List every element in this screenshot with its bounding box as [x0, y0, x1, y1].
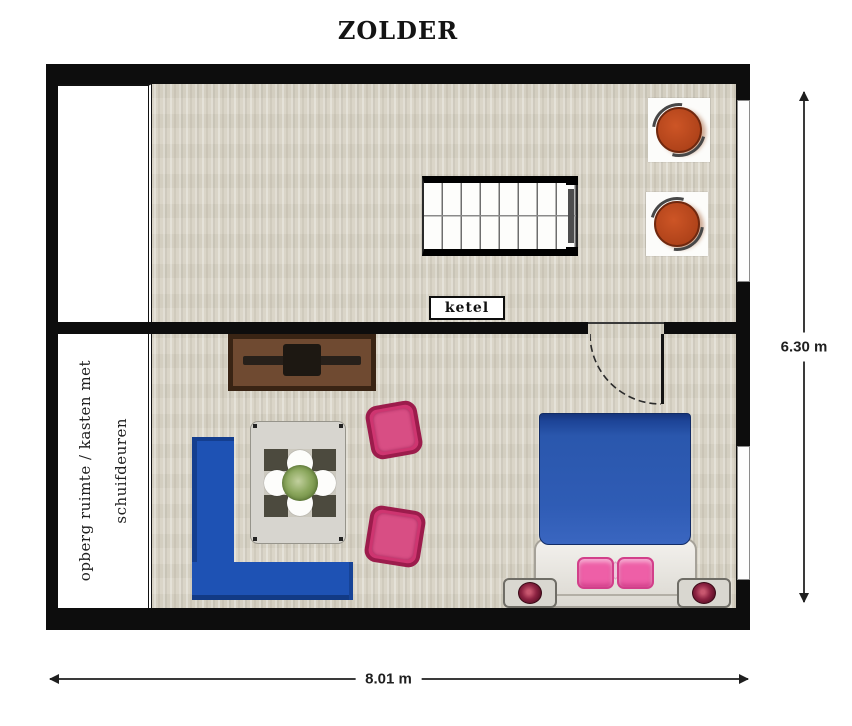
- armchair: [364, 399, 425, 461]
- page-title: ZOLDER: [46, 16, 750, 45]
- stair-landing-mark: [566, 176, 578, 185]
- armchair: [363, 504, 427, 569]
- storage-label: opberg ruimte / kasten met schuifdeuren: [58, 334, 148, 608]
- floor-plan: ZOLDER opberg ruimte / kasten met schuif…: [0, 0, 852, 726]
- door-swing-arc: [590, 334, 662, 405]
- divider-wall: [664, 322, 750, 334]
- window: [737, 100, 750, 282]
- dimension-height-label: 6.30 m: [779, 333, 830, 362]
- wall-top: [46, 64, 750, 84]
- wall-bottom: [46, 608, 750, 630]
- boiler-label: ketel: [429, 296, 505, 320]
- lamp-icon: [692, 582, 716, 604]
- bed-blanket: [539, 413, 691, 545]
- wall-left: [46, 64, 58, 630]
- lounge-chair: [646, 192, 708, 256]
- storage-closet-lower: opberg ruimte / kasten met schuifdeuren: [58, 334, 152, 608]
- lounge-chair: [648, 98, 710, 162]
- dimension-height: 6.30 m: [796, 92, 812, 602]
- chair-seat: [656, 107, 702, 153]
- arrow-left-icon: [49, 674, 59, 684]
- arrow-right-icon: [739, 674, 749, 684]
- dimension-width-label: 8.01 m: [355, 671, 422, 688]
- storage-label-line2: schuifdeuren: [112, 418, 130, 524]
- storage-closet-upper: [58, 84, 152, 322]
- stair-landing-mark: [566, 247, 578, 256]
- armchair-seat: [371, 512, 419, 561]
- staircase: [422, 176, 578, 256]
- storage-label-line1: opberg ruimte / kasten met: [76, 360, 94, 581]
- pillow: [617, 557, 654, 589]
- plant-centerpiece: [282, 465, 318, 501]
- pillow: [577, 557, 614, 589]
- nightstand: [677, 578, 731, 608]
- door-opening: [588, 322, 664, 324]
- dimension-width: 8.01 m: [50, 670, 748, 688]
- lamp-icon: [518, 582, 542, 604]
- window: [737, 446, 750, 580]
- divider-wall: [46, 322, 588, 334]
- sofa-bottom-section: [192, 562, 353, 600]
- chair-seat: [654, 201, 700, 247]
- arrow-down-icon: [799, 593, 809, 603]
- headboard-line: [552, 594, 679, 596]
- tv-icon: [283, 344, 321, 376]
- nightstand: [503, 578, 557, 608]
- boiler-label-text: ketel: [445, 300, 489, 316]
- tv-cabinet: [228, 334, 376, 391]
- armchair-seat: [372, 407, 416, 453]
- stair-rail: [568, 189, 574, 243]
- arrow-up-icon: [799, 91, 809, 101]
- dining-table: [264, 449, 336, 517]
